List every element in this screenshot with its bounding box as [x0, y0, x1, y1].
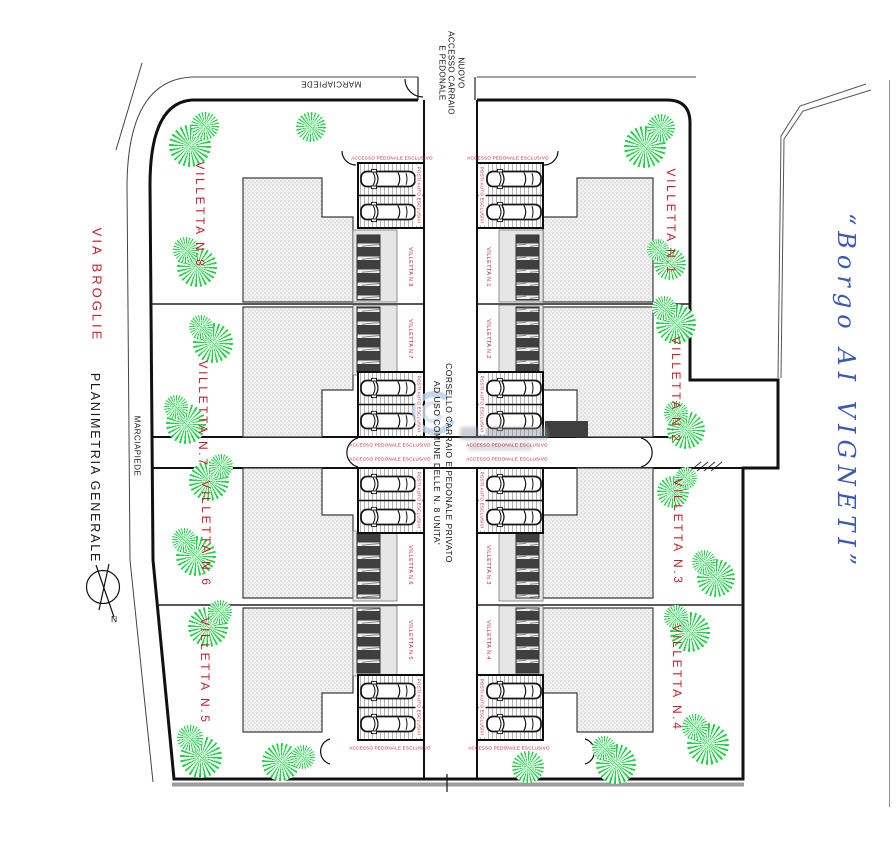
villa-label-3: VILLETTA N.3 — [671, 478, 685, 585]
tree-icon — [177, 725, 203, 751]
tree-icon — [682, 714, 708, 740]
ramp-hatch-ticks — [690, 462, 722, 471]
ramp-block — [545, 421, 588, 437]
north-compass-icon: N — [87, 564, 120, 624]
site-plan: N PLANIMETRIA GENERALE VIA — [0, 0, 896, 864]
parking-label: POSTI AUTO ESCLUSIVI — [416, 470, 423, 531]
tree-icon — [647, 114, 675, 142]
tree-icon — [512, 751, 544, 783]
sidewalk-left-label: MARCIAPIEDE — [133, 416, 142, 477]
parking-label: POSTI AUTO ESCLUSIVI — [479, 165, 486, 226]
new-access-line1: NUOVO — [456, 31, 466, 115]
tree-icon — [692, 550, 716, 574]
villa-tag-8: VILLETTA N.8 — [407, 247, 413, 287]
villa-label-1: VILLETTA N.1 — [664, 168, 678, 275]
villa-tag-1: VILLETTA N.1 — [485, 247, 491, 287]
parking-label: POSTI AUTO ESCLUSIVI — [416, 165, 423, 226]
villa-label-7: VILLETTA N.7 — [196, 360, 210, 467]
parking-label: POSTI AUTO ESCLUSIVI — [416, 677, 423, 738]
project-name-label: “Borgo AI VIGNETI” — [832, 213, 860, 571]
page-title: PLANIMETRIA GENERALE — [88, 373, 102, 563]
villa-tag-6: VILLETTA N.6 — [407, 545, 413, 585]
pedestrian-access-label: ACCESSO PEDONALE ESCLUSIVO — [468, 746, 550, 751]
pedestrian-access-label: ACCESSO PEDONALE ESCLUSIVO — [466, 457, 548, 462]
driveway-label: CORSELLO CARRAIO E PEDONALE PRIVATO AD U… — [431, 363, 455, 563]
pedestrian-access-label: ACCESSO PEDONALE ESCLUSIVO — [349, 443, 431, 448]
parking-label: POSTI AUTO ESCLUSIVI — [416, 374, 423, 435]
new-access-label: NUOVO ACCESSO CARRAIO E PEDONALE — [437, 31, 466, 115]
watermark-text-blur — [460, 427, 548, 440]
sidewalk-top-label: MARCIAPIEDE — [301, 80, 362, 89]
villa-label-6: VILLETTA N.6 — [199, 480, 213, 587]
parking-label: POSTI AUTO ESCLUSIVI — [479, 470, 486, 531]
pedestrian-access-label: ACCESSO PEDONALE ESCLUSIVO — [349, 457, 431, 462]
villa-label-8: VILLETTA N.8 — [193, 161, 207, 268]
villa-tag-7: VILLETTA N.7 — [407, 319, 413, 359]
new-access-line3: E PEDONALE — [437, 31, 447, 115]
driveway-line1: CORSELLO CARRAIO E PEDONALE PRIVATO — [443, 363, 455, 563]
tree-icon — [652, 296, 676, 320]
villa-tag-2: VILLETTA N.2 — [485, 319, 491, 359]
tree-icon — [296, 112, 326, 142]
villa-tag-4: VILLETTA N.4 — [485, 620, 491, 660]
new-access-line2: ACCESSO CARRAIO — [446, 31, 456, 115]
villa-label-2: VILLETTA N.2 — [669, 336, 683, 443]
tree-icon — [291, 745, 315, 769]
pedestrian-access-label: ACCESSO PEDONALE ESCLUSIVO — [466, 443, 548, 448]
tree-icon — [592, 736, 616, 760]
pedestrian-access-label: ACCESSO PEDONALE ESCLUSIVO — [467, 156, 549, 161]
tree-icon — [164, 395, 188, 419]
tree-icon — [209, 454, 233, 478]
villa-label-4: VILLETTA N.4 — [670, 624, 684, 731]
pedestrian-access-label: ACCESSO PEDONALE ESCLUSIVO — [351, 156, 433, 161]
driveway-line2: AD USO COMUNE DELLE N. 8 UNITA' — [431, 363, 443, 563]
parking-label: POSTI AUTO ESCLUSIVI — [479, 374, 486, 435]
north-label: N — [111, 614, 117, 624]
tree-icon — [189, 315, 213, 339]
tree-icon — [191, 112, 219, 140]
street-label: VIA BROGLIE — [90, 228, 105, 343]
pedestrian-access-label: ACCESSO PEDONALE ESCLUSIVO — [349, 746, 431, 751]
villa-tag-3: VILLETTA N.3 — [485, 545, 491, 585]
tree-icon — [172, 528, 196, 552]
parking-label: POSTI AUTO ESCLUSIVI — [479, 677, 486, 738]
villa-tag-5: VILLETTA N.5 — [407, 620, 413, 660]
villa-label-5: VILLETTA N.5 — [198, 617, 212, 724]
